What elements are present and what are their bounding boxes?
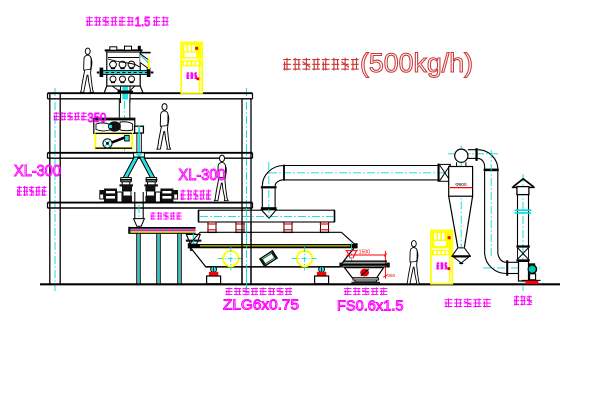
svg-text:XL-300: XL-300 <box>14 163 61 180</box>
svg-text:350: 350 <box>87 110 106 125</box>
svg-text:350: 350 <box>387 273 395 278</box>
svg-text:Φ800: Φ800 <box>455 182 467 187</box>
svg-text:FS0.6x1.5: FS0.6x1.5 <box>337 298 404 315</box>
svg-text:1.5: 1.5 <box>135 14 151 29</box>
svg-text:ZLG6x0.75: ZLG6x0.75 <box>223 298 299 314</box>
svg-text:XL-300: XL-300 <box>179 167 226 184</box>
svg-text:(500kg/h): (500kg/h) <box>360 48 473 78</box>
